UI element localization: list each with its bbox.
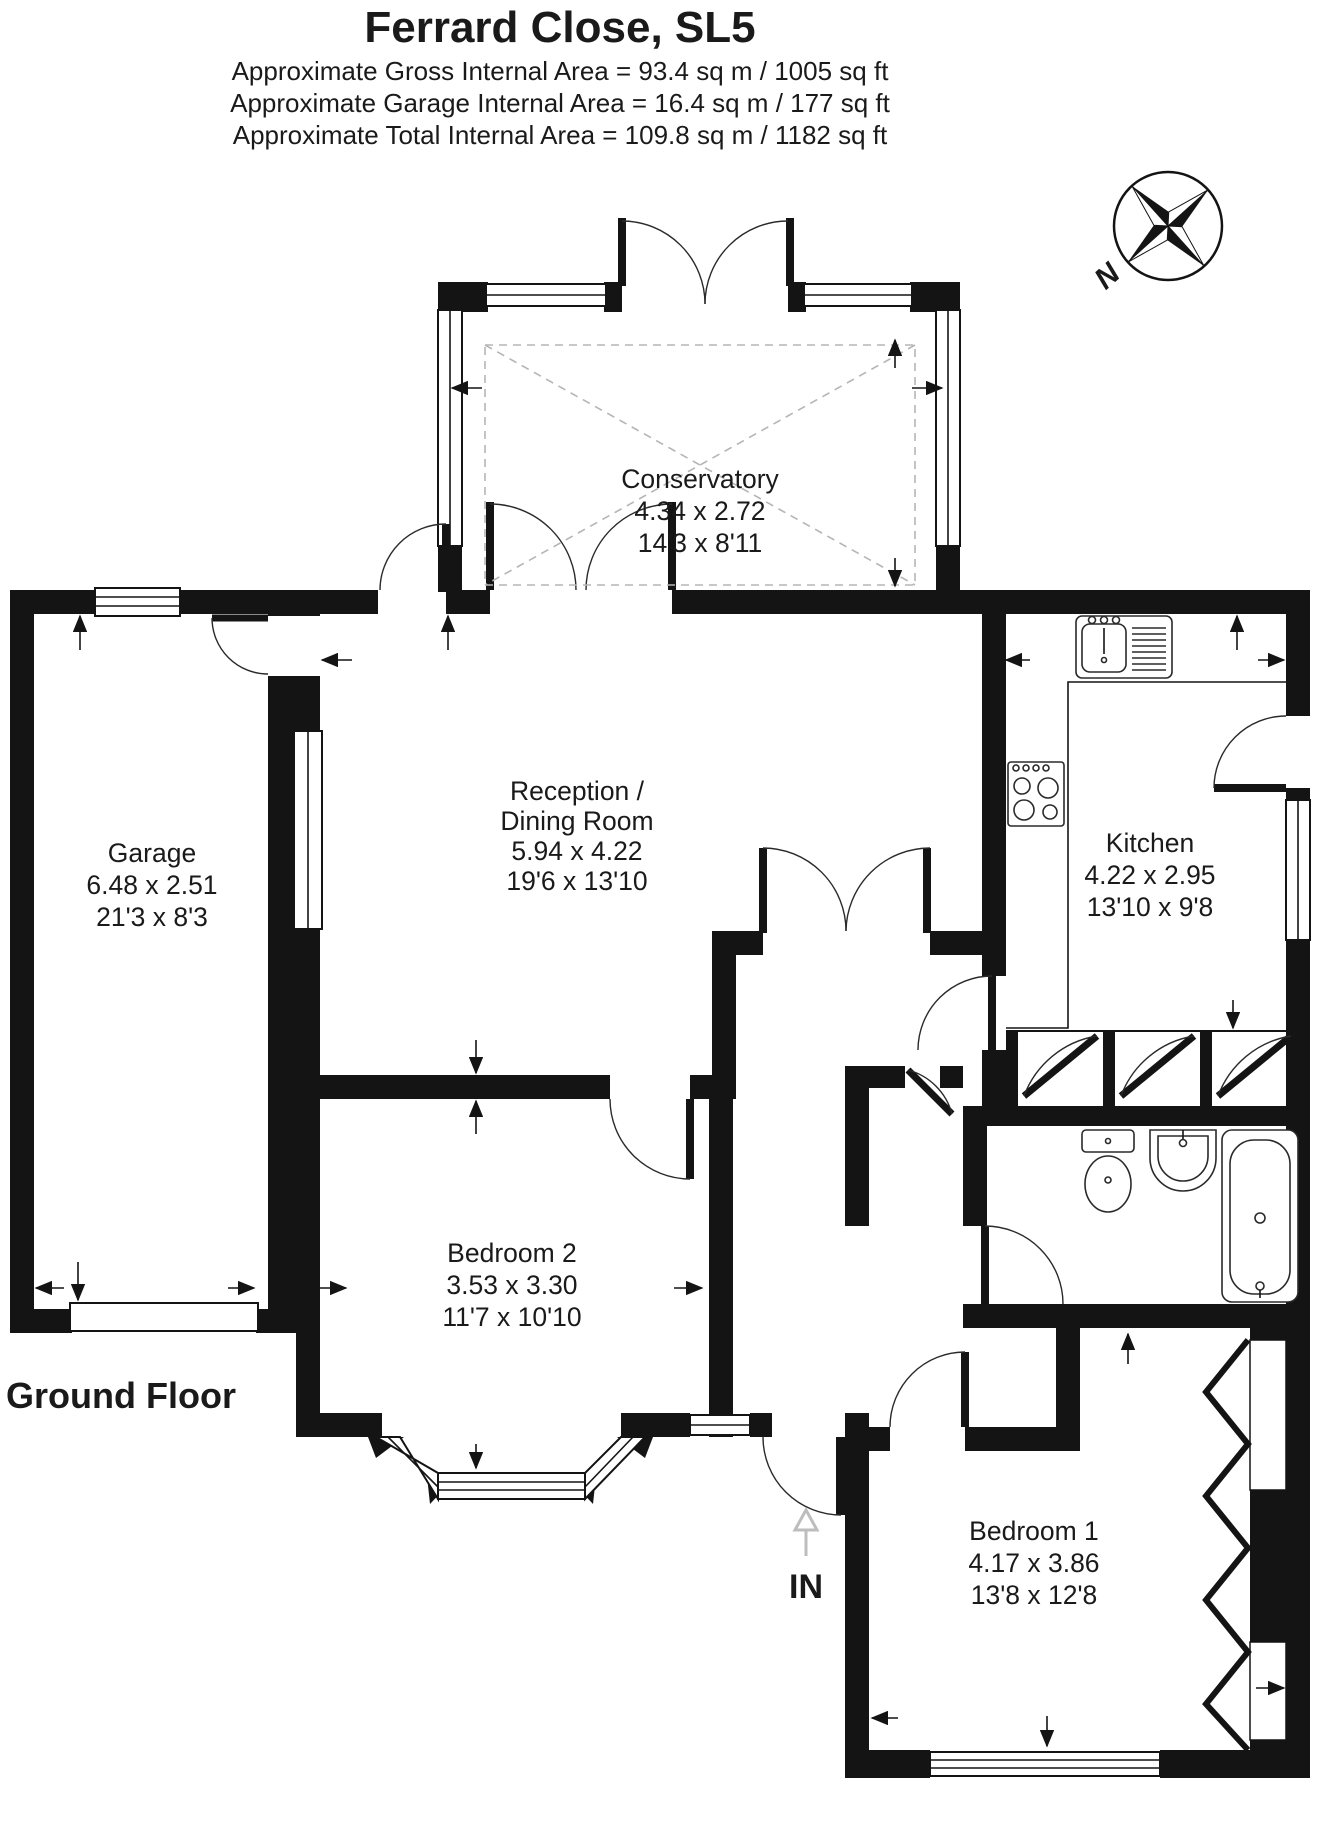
svg-text:Dining Room: Dining Room <box>500 806 653 836</box>
svg-text:14'3 x 8'11: 14'3 x 8'11 <box>638 528 763 558</box>
garage-label: Garage 6.48 x 2.51 21'3 x 8'3 <box>86 838 217 932</box>
conservatory-top-left-window <box>486 284 606 306</box>
svg-text:19'6 x 13'10: 19'6 x 13'10 <box>506 866 647 896</box>
svg-text:Reception /: Reception / <box>510 776 645 806</box>
compass-north-label: N <box>1088 256 1127 296</box>
floor-label: Ground Floor <box>6 1375 236 1416</box>
garage-area-line: Approximate Garage Internal Area = 16.4 … <box>230 88 891 118</box>
bedroom1-window <box>930 1752 1160 1776</box>
total-area-line: Approximate Total Internal Area = 109.8 … <box>233 120 888 150</box>
svg-text:Conservatory: Conservatory <box>621 464 779 494</box>
fixtures <box>1006 616 1298 1302</box>
svg-text:4.17 x 3.86: 4.17 x 3.86 <box>968 1548 1099 1578</box>
porch-window <box>690 1415 750 1435</box>
kitchen-hall-door <box>918 976 996 1050</box>
toilet-icon <box>1082 1130 1134 1212</box>
header: Ferrard Close, SL5 Approximate Gross Int… <box>230 3 891 150</box>
svg-text:6.48 x 2.51: 6.48 x 2.51 <box>86 870 217 900</box>
svg-text:13'8 x 12'8: 13'8 x 12'8 <box>971 1580 1098 1610</box>
compass-rose-icon: N <box>1088 150 1244 303</box>
hob-icon <box>1008 762 1064 826</box>
conservatory-label: Conservatory 4.34 x 2.72 14'3 x 8'11 <box>621 464 779 558</box>
svg-text:13'10 x 9'8: 13'10 x 9'8 <box>1087 892 1214 922</box>
svg-text:Bedroom 2: Bedroom 2 <box>447 1238 577 1268</box>
hall-cupboard-doors <box>1024 1036 1291 1096</box>
svg-text:4.34 x 2.72: 4.34 x 2.72 <box>634 496 765 526</box>
conservatory-right-window <box>936 310 960 546</box>
wardrobe-bifold-doors <box>1206 1340 1248 1750</box>
floorplan-svg: Ferrard Close, SL5 Approximate Gross Int… <box>0 0 1328 1835</box>
svg-text:3.53 x 3.30: 3.53 x 3.30 <box>446 1270 577 1300</box>
kitchen-label: Kitchen 4.22 x 2.95 13'10 x 9'8 <box>1084 828 1215 922</box>
kitchen-door-cut <box>1284 716 1312 788</box>
svg-text:Garage: Garage <box>108 838 196 868</box>
conservatory-top-right-window <box>804 284 912 306</box>
svg-text:5.94 x 4.22: 5.94 x 4.22 <box>511 836 642 866</box>
bedroom1-label: Bedroom 1 4.17 x 3.86 13'8 x 12'8 <box>968 1516 1099 1610</box>
svg-text:11'7 x 10'10: 11'7 x 10'10 <box>442 1302 581 1332</box>
gross-area-line: Approximate Gross Internal Area = 93.4 s… <box>232 56 890 86</box>
garage-door <box>70 1303 258 1331</box>
garage-side-door-cut <box>268 616 326 676</box>
svg-text:Bedroom 1: Bedroom 1 <box>969 1516 1099 1546</box>
reception-label: Reception / Dining Room 5.94 x 4.22 19'6… <box>500 776 653 896</box>
garage-side-door <box>212 618 268 674</box>
garage-window <box>95 588 180 616</box>
reception-double-door <box>759 848 931 933</box>
entry-arrow-icon <box>795 1510 817 1556</box>
kitchen-side-door <box>1214 716 1286 792</box>
sink-icon <box>1076 616 1172 678</box>
doors <box>212 218 1291 1750</box>
kitchen-right-window <box>1286 800 1310 940</box>
basin-icon <box>1150 1130 1216 1191</box>
svg-text:4.22 x 2.95: 4.22 x 2.95 <box>1084 860 1215 890</box>
svg-text:Kitchen: Kitchen <box>1106 828 1194 858</box>
entrance-label: IN <box>789 1568 823 1606</box>
page-title: Ferrard Close, SL5 <box>364 3 755 52</box>
conservatory-outer-double-door <box>618 218 794 304</box>
bay-window <box>376 1437 645 1499</box>
reception-left-window <box>294 731 322 929</box>
floorplan-page: Ferrard Close, SL5 Approximate Gross Int… <box>0 0 1328 1835</box>
front-door <box>763 1437 845 1515</box>
bedroom2-door <box>610 1099 694 1179</box>
bathroom-door <box>981 1226 1063 1304</box>
svg-text:21'3 x 8'3: 21'3 x 8'3 <box>96 902 208 932</box>
bathtub-icon <box>1222 1130 1298 1302</box>
conservatory-left-window <box>438 310 462 546</box>
bedroom1-door <box>890 1352 969 1427</box>
bedroom2-label: Bedroom 2 3.53 x 3.30 11'7 x 10'10 <box>442 1238 581 1332</box>
